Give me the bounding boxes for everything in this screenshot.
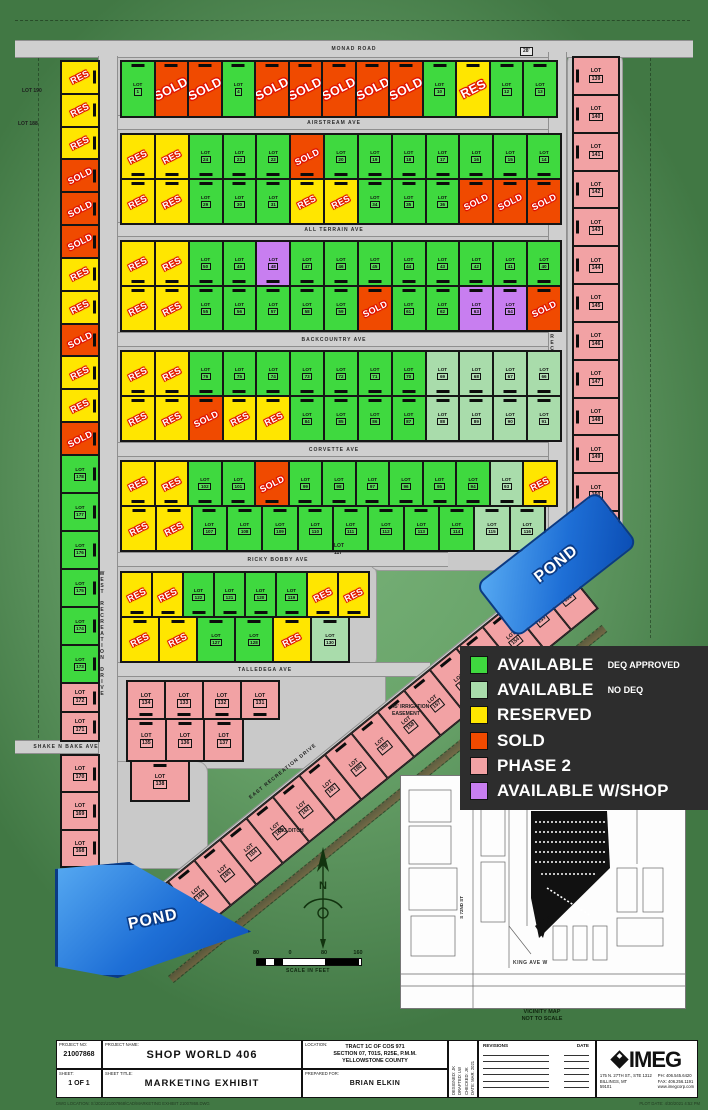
lot-number-label: LOT147 [589,371,603,386]
driveway-mark [534,500,547,503]
lot-number-label: LOT76 [201,367,211,380]
driveway-mark [402,399,415,402]
driveway-mark [467,500,480,503]
lot-number-label: LOT160 [346,756,366,776]
lot-17: LOT17 [426,134,460,179]
project-no-box: PROJECT NO: 21007868 [56,1040,102,1069]
legend-label: RESERVED [497,705,592,725]
lot-124: RES [121,572,152,617]
legend-sublabel: NO DEQ [608,685,644,695]
driveway-mark [467,64,480,67]
lot-77: RES [155,351,189,396]
sold-stamp: SOLD [155,75,189,104]
reserved-stamp: RES [157,586,179,604]
driveway-mark [178,713,191,716]
lot-number-label: LOT85 [336,412,346,425]
lot-75: LOT75 [223,351,257,396]
driveway-mark [283,785,295,795]
lot-number-label: LOT12 [502,82,512,95]
driveway-mark [238,509,251,512]
lot-number-label: LOT128 [248,633,261,646]
lot-129: RES [273,617,311,662]
driveway-mark [334,390,347,393]
prepared-for-label: PREPARED FOR: [305,1071,339,1076]
reserved-stamp: RES [69,101,91,119]
location-box: LOCATION: TRACT 1C OF COS 971 SECTION 07… [302,1040,448,1069]
lot-13: LOT13 [523,61,557,117]
reserved-stamp: RES [343,586,365,604]
driveway-mark [93,506,96,519]
driveway-mark [265,64,278,67]
lot-number-label: LOT139 [589,68,603,83]
lot-number-label: LOT172 [73,690,87,705]
lot-96: LOT96 [389,461,423,506]
reserved-stamp: RES [127,365,149,383]
lot-117: RES [338,572,369,617]
lot-number-label: LOT144 [589,258,603,273]
road-corvette-ave: CORVETTE AVE [108,442,560,457]
lot-strip: RESRESLOT107LOT108LOT109LOT110LOT111LOT1… [120,505,546,552]
driveway-mark [366,64,379,67]
reserved-stamp: RES [69,266,91,284]
reserved-stamp: RES [312,586,334,604]
driveway-mark [576,107,579,120]
lot-177: LOT177 [61,493,99,531]
lot-strip: RESRESLOT76LOT75LOT74LOT73LOT72LOT71LOT7… [120,350,562,397]
driveway-mark [576,296,579,309]
imeg-logo-text: IMEG [629,1050,681,1070]
scale-caption: SCALE IN FEET [252,968,364,974]
driveway-mark [233,390,246,393]
lot-7: SOLD [322,61,356,117]
lot-number-label: LOT36 [437,195,447,208]
sold-stamp: SOLD [356,75,390,104]
revisions-date-label: DATE [577,1043,589,1048]
lot-number-label: LOT84 [302,412,312,425]
driveway-mark [334,399,347,402]
sheet-title-label: SHEET TITLE: [105,1071,133,1076]
driveway-mark [436,289,449,292]
driveway-mark [230,827,242,837]
lot-number-label: LOT140 [589,106,603,121]
legend-label: AVAILABLE [497,655,594,675]
sold-stamp: SOLD [389,75,423,104]
driveway-mark [470,289,483,292]
driveway-mark [93,620,96,633]
driveway-mark [366,500,379,503]
lot-number-label: LOT44 [404,257,414,270]
lot-number-label: LOT171 [73,719,87,734]
lot-number-label: LOT94 [468,477,478,490]
lot-number-label: LOT50 [201,257,211,270]
reserved-stamp: RES [69,397,91,415]
driveway-mark [93,268,96,281]
lot-48: LOT48 [256,241,290,286]
lot-179: SOLD [61,422,99,455]
lot-32: RES [290,179,324,224]
driveway-mark [504,390,517,393]
driveway-mark [470,173,483,176]
road-backcountry-ave: BACKCOUNTRY AVE [108,332,560,347]
vicinity-street-72nd: S 72ND ST [459,896,464,919]
lot-number-label: LOT116 [521,522,533,535]
driveway-mark [198,64,211,67]
legend-swatch-shop [470,782,488,800]
lot-12: LOT12 [490,61,524,117]
lot-26: RES [121,134,155,179]
driveway-mark [93,71,96,84]
street-name: TALLEDEGA AVE [238,667,292,673]
driveway-mark [165,390,178,393]
lot-131: LOT131 [241,681,279,719]
lot-80: RES [155,396,189,441]
lot-number-label: LOT146 [589,333,603,348]
title-block: PROJECT NO: 21007868 SHEET: 1 OF 1 PROJE… [56,1040,702,1098]
lot-2: SOLD [155,61,189,117]
lot-36: LOT36 [426,179,460,224]
driveway-mark [400,64,413,67]
driveway-mark [436,182,449,185]
lot-189: RES [61,94,99,127]
lot-number-label: LOT165 [215,862,235,882]
lot-46: LOT46 [324,241,358,286]
project-name-label: PROJECT NAME: [105,1042,139,1047]
lot-number-label: LOT113 [415,522,427,535]
reserved-stamp: RES [69,364,91,382]
lot-number-label: LOT95 [434,477,444,490]
vicinity-caption: VICINITY MAP NOT TO SCALE [400,1009,684,1023]
legend-label: SOLD [497,731,545,751]
driveway-mark [334,289,347,292]
lot-strip: RESRESLOT55LOT56LOT57LOT58LOT59SOLDLOT61… [120,285,562,332]
street-name: MONAD ROAD [332,46,377,52]
sold-stamp: SOLD [258,473,286,494]
lot-67: LOT67 [493,351,527,396]
driveway-mark [216,713,229,716]
revisions-label: REVISIONS [483,1043,508,1048]
lot-strip: RESRESLOT127LOT128RESLOT130 [120,616,350,663]
lot-134: LOT134 [127,681,165,719]
driveway-mark [199,399,212,402]
driveway-mark [334,182,347,185]
lot-number-label: LOT177 [74,505,87,518]
lot-number-label: LOT149 [589,447,603,462]
driveway-mark [402,289,415,292]
driveway-mark [93,691,96,704]
project-name-box: PROJECT NAME: SHOP WORLD 406 [102,1040,302,1069]
reserved-stamp: RES [229,410,251,428]
lot-6: SOLD [289,61,323,117]
legend-item-sold: SOLD [470,731,708,751]
lot-71: LOT71 [358,351,392,396]
lot-186: SOLD [61,192,99,225]
lot-number-label: LOT19 [370,150,380,163]
reserved-stamp: RES [281,631,303,649]
scale-ticks: 80080160 [252,950,372,958]
reserved-stamp: RES [128,520,150,538]
lot-number-label: LOT136 [178,733,192,748]
lot-number-label: LOT74 [268,367,278,380]
road-ricky-bobby-ave: RICKY BOBBY AVE [108,552,448,567]
lot-93: LOT93 [490,461,524,506]
driveway-mark [309,509,322,512]
lot-69: LOT69 [426,351,460,396]
scale-tick: 0 [288,950,291,956]
lot-122: LOT122 [183,572,214,617]
legend: AVAILABLEDEQ APPROVEDAVAILABLENO DEQRESE… [460,646,708,810]
street-name: AIRSTREAM AVE [307,120,361,126]
lot-24: LOT24 [189,134,223,179]
lot-89: LOT89 [459,396,493,441]
driveway-mark [576,69,579,82]
sold-stamp: SOLD [66,165,94,186]
driveway-mark [131,399,144,402]
lot-98: LOT98 [322,461,356,506]
lot-108: LOT108 [227,506,262,551]
lot-149: LOT149 [573,435,619,473]
lot-83: RES [256,396,290,441]
lot-strip: LOT172LOT171 [60,682,100,742]
driveway-mark [301,182,314,185]
driveway-mark [178,870,190,880]
driveway-mark [154,764,167,767]
driveway-mark [93,334,96,347]
lot-104: RES [121,461,155,506]
lot-144: LOT144 [573,246,619,284]
driveway-mark [131,182,144,185]
driveway-mark [93,169,96,182]
lot-number-label: LOT13 [535,82,545,95]
driveway-mark [332,64,345,67]
lot-number-label: LOT107 [203,522,216,535]
lot-number-label: LOT138 [153,774,167,789]
lot-28: RES [155,179,189,224]
legend-swatch-reserved [470,706,488,724]
lot-90: LOT90 [493,396,527,441]
scale-bar-segments [256,958,362,966]
lot-52: RES [121,241,155,286]
road-talledega-ave: TALLEDEGA AVE [100,662,430,677]
lot-97: LOT97 [356,461,390,506]
lot-118: RES [307,572,338,617]
lot-91: LOT91 [527,396,561,441]
drafting-field: CHECKED: JK [464,1041,469,1097]
driveway-mark [344,509,357,512]
driveway-mark [538,280,551,283]
scale-bar: 80080160 SCALE IN FEET [252,950,372,974]
driveway-mark [402,173,415,176]
driveway-mark [93,301,96,314]
driveway-mark [470,390,483,393]
lot-number-label: LOT96 [401,477,411,490]
lot-127: LOT127 [197,617,235,662]
reserved-stamp: RES [69,134,91,152]
lot-137: LOT137 [204,719,243,761]
reserved-stamp: RES [458,77,488,102]
lot-38: SOLD [493,179,527,224]
lot-70: LOT70 [392,351,426,396]
lot-22: LOT22 [256,134,290,179]
scale-segment [257,959,266,965]
driveway-mark [233,289,246,292]
driveway-mark [198,500,211,503]
lot-number-label: LOT35 [404,195,414,208]
driveway-mark [93,468,96,481]
lot-number-label: LOT178 [74,467,87,480]
scale-segment [325,959,359,965]
dwg-location-note: DWG LOCATION: S:\2021\21007868\CAD\MARKE… [56,1101,210,1106]
lot-95: LOT95 [423,461,457,506]
sheet-title-box: SHEET TITLE: MARKETING EXHIBIT [102,1069,302,1098]
lot-number-label: LOT69 [437,367,447,380]
reserved-stamp: RES [69,298,91,316]
driveway-mark [267,182,280,185]
lot-number-label: LOT67 [505,367,515,380]
driveway-mark [233,182,246,185]
lot-number-label: LOT122 [192,588,205,601]
street-name: SHAKE N BAKE AVE [33,744,98,750]
lot-94: LOT94 [456,461,490,506]
lot-number-label: LOT86 [370,412,380,425]
driveway-mark [165,64,178,67]
lot-180: RES [61,389,99,422]
lot-number-label: LOT98 [334,477,344,490]
driveway-mark [131,289,144,292]
lot-25: RES [155,134,189,179]
driveway-mark [436,390,449,393]
lot-64: LOT64 [493,286,527,331]
lot-number-label: LOT41 [505,257,515,270]
lot-strip: RESRESLOT29LOT30LOT31RESRESLOT34LOT35LOT… [120,178,562,225]
pond-label: POND [531,542,582,587]
lot-56: LOT56 [223,286,257,331]
lot-54: RES [155,286,189,331]
reserved-stamp: RES [127,193,149,211]
lot-number-label: LOT31 [268,195,278,208]
lot-171: LOT171 [61,712,99,741]
lot-number-label: LOT16 [471,150,481,163]
lot-125: RES [121,617,159,662]
lot-number-label: LOT93 [502,477,512,490]
lot-number-label: LOT89 [471,412,481,425]
driveway-mark [299,64,312,67]
driveway-mark [450,509,463,512]
lot-number-label: LOT97 [367,477,377,490]
lot-29: LOT29 [189,179,223,224]
lot-number-label: LOT10 [434,82,444,95]
driveway-mark [203,509,216,512]
driveway-mark [165,182,178,185]
lot-62: LOT62 [426,286,460,331]
lot-number-label: LOT120 [254,588,267,601]
driveway-mark [93,658,96,671]
lot-number-label: LOT49 [234,257,244,270]
lot-23: LOT23 [223,134,257,179]
lot-123: RES [152,572,183,617]
lot-number-label: LOT169 [73,803,87,818]
vicinity-street-king-ave: KING AVE W [513,960,548,966]
lot-strip: RESRESRESSOLDSOLDSOLDRESRESSOLDRESRESSOL… [60,60,100,456]
driveway-mark [248,620,261,623]
driveway-mark [273,509,286,512]
lot-114: LOT114 [439,506,474,551]
project-no-label: PROJECT NO: [59,1042,87,1047]
lot-88: LOT88 [426,396,460,441]
lot-number-label: LOT170 [73,766,87,781]
scale-tick: 80 [253,950,259,956]
lot-139: LOT139 [573,57,619,95]
legend-swatch-sold [470,732,488,750]
lot-number-label: LOT132 [215,693,229,708]
driveway-mark [93,767,96,780]
sold-stamp: SOLD [66,428,94,449]
driveway-mark [576,334,579,347]
lot-number-label: LOT164 [241,841,261,861]
reserved-stamp: RES [161,148,183,166]
lot-145: LOT145 [573,284,619,322]
lot-30: LOT30 [223,179,257,224]
lot-number-label: LOT55 [201,302,211,315]
lot-strip: LOT178LOT177LOT176LOT175LOT174LOT173 [60,454,100,684]
lot-number-label: LOT159 [373,735,393,755]
driveway-mark [165,280,178,283]
sold-stamp: SOLD [361,298,389,319]
lot-19: LOT19 [358,134,392,179]
driveway-mark [93,366,96,379]
lot-87: LOT87 [392,396,426,441]
lot-112: LOT112 [368,506,403,551]
driveway-mark [400,500,413,503]
driveway-mark [504,173,517,176]
driveway-mark [332,500,345,503]
lot-strip: RESRESLOT122LOT121LOT120LOT119RESRES [120,571,370,618]
sold-stamp: SOLD [496,191,524,212]
lot-82: RES [223,396,257,441]
sheet-title-value: MARKETING EXHIBIT [103,1070,301,1097]
lot-number-label: LOT23 [234,150,244,163]
driveway-mark [368,289,381,292]
lot-strip: LOT135LOT136LOT137 [126,718,244,762]
lot-136: LOT136 [166,719,205,761]
lot-41: LOT41 [493,241,527,286]
lot-78: RES [121,351,155,396]
lot-66: LOT66 [527,351,561,396]
lot-number-label: LOT20 [336,150,346,163]
reserved-stamp: RES [126,586,148,604]
lot-173: LOT173 [61,645,99,683]
lot-113: LOT113 [404,506,439,551]
lot-121: LOT121 [214,572,245,617]
driveway-mark [504,399,517,402]
lot-140: LOT140 [573,95,619,133]
lot-37: SOLD [459,179,493,224]
lot-number-label: LOT91 [539,412,549,425]
lot-4: LOT4 [222,61,256,117]
lot-68: LOT68 [459,351,493,396]
driveway-mark [165,399,178,402]
reserved-stamp: RES [163,520,185,538]
legend-label: AVAILABLE W/SHOP [497,781,669,801]
driveway-mark [93,399,96,412]
reserved-stamp: RES [129,631,151,649]
lot-132: LOT132 [203,681,241,719]
driveway-mark [576,448,579,461]
lot-number-label: LOT135 [140,733,154,748]
lot-number-label: LOT162 [294,799,314,819]
driveway-mark [368,173,381,176]
driveway-mark [301,399,314,402]
driveway-mark [140,713,153,716]
